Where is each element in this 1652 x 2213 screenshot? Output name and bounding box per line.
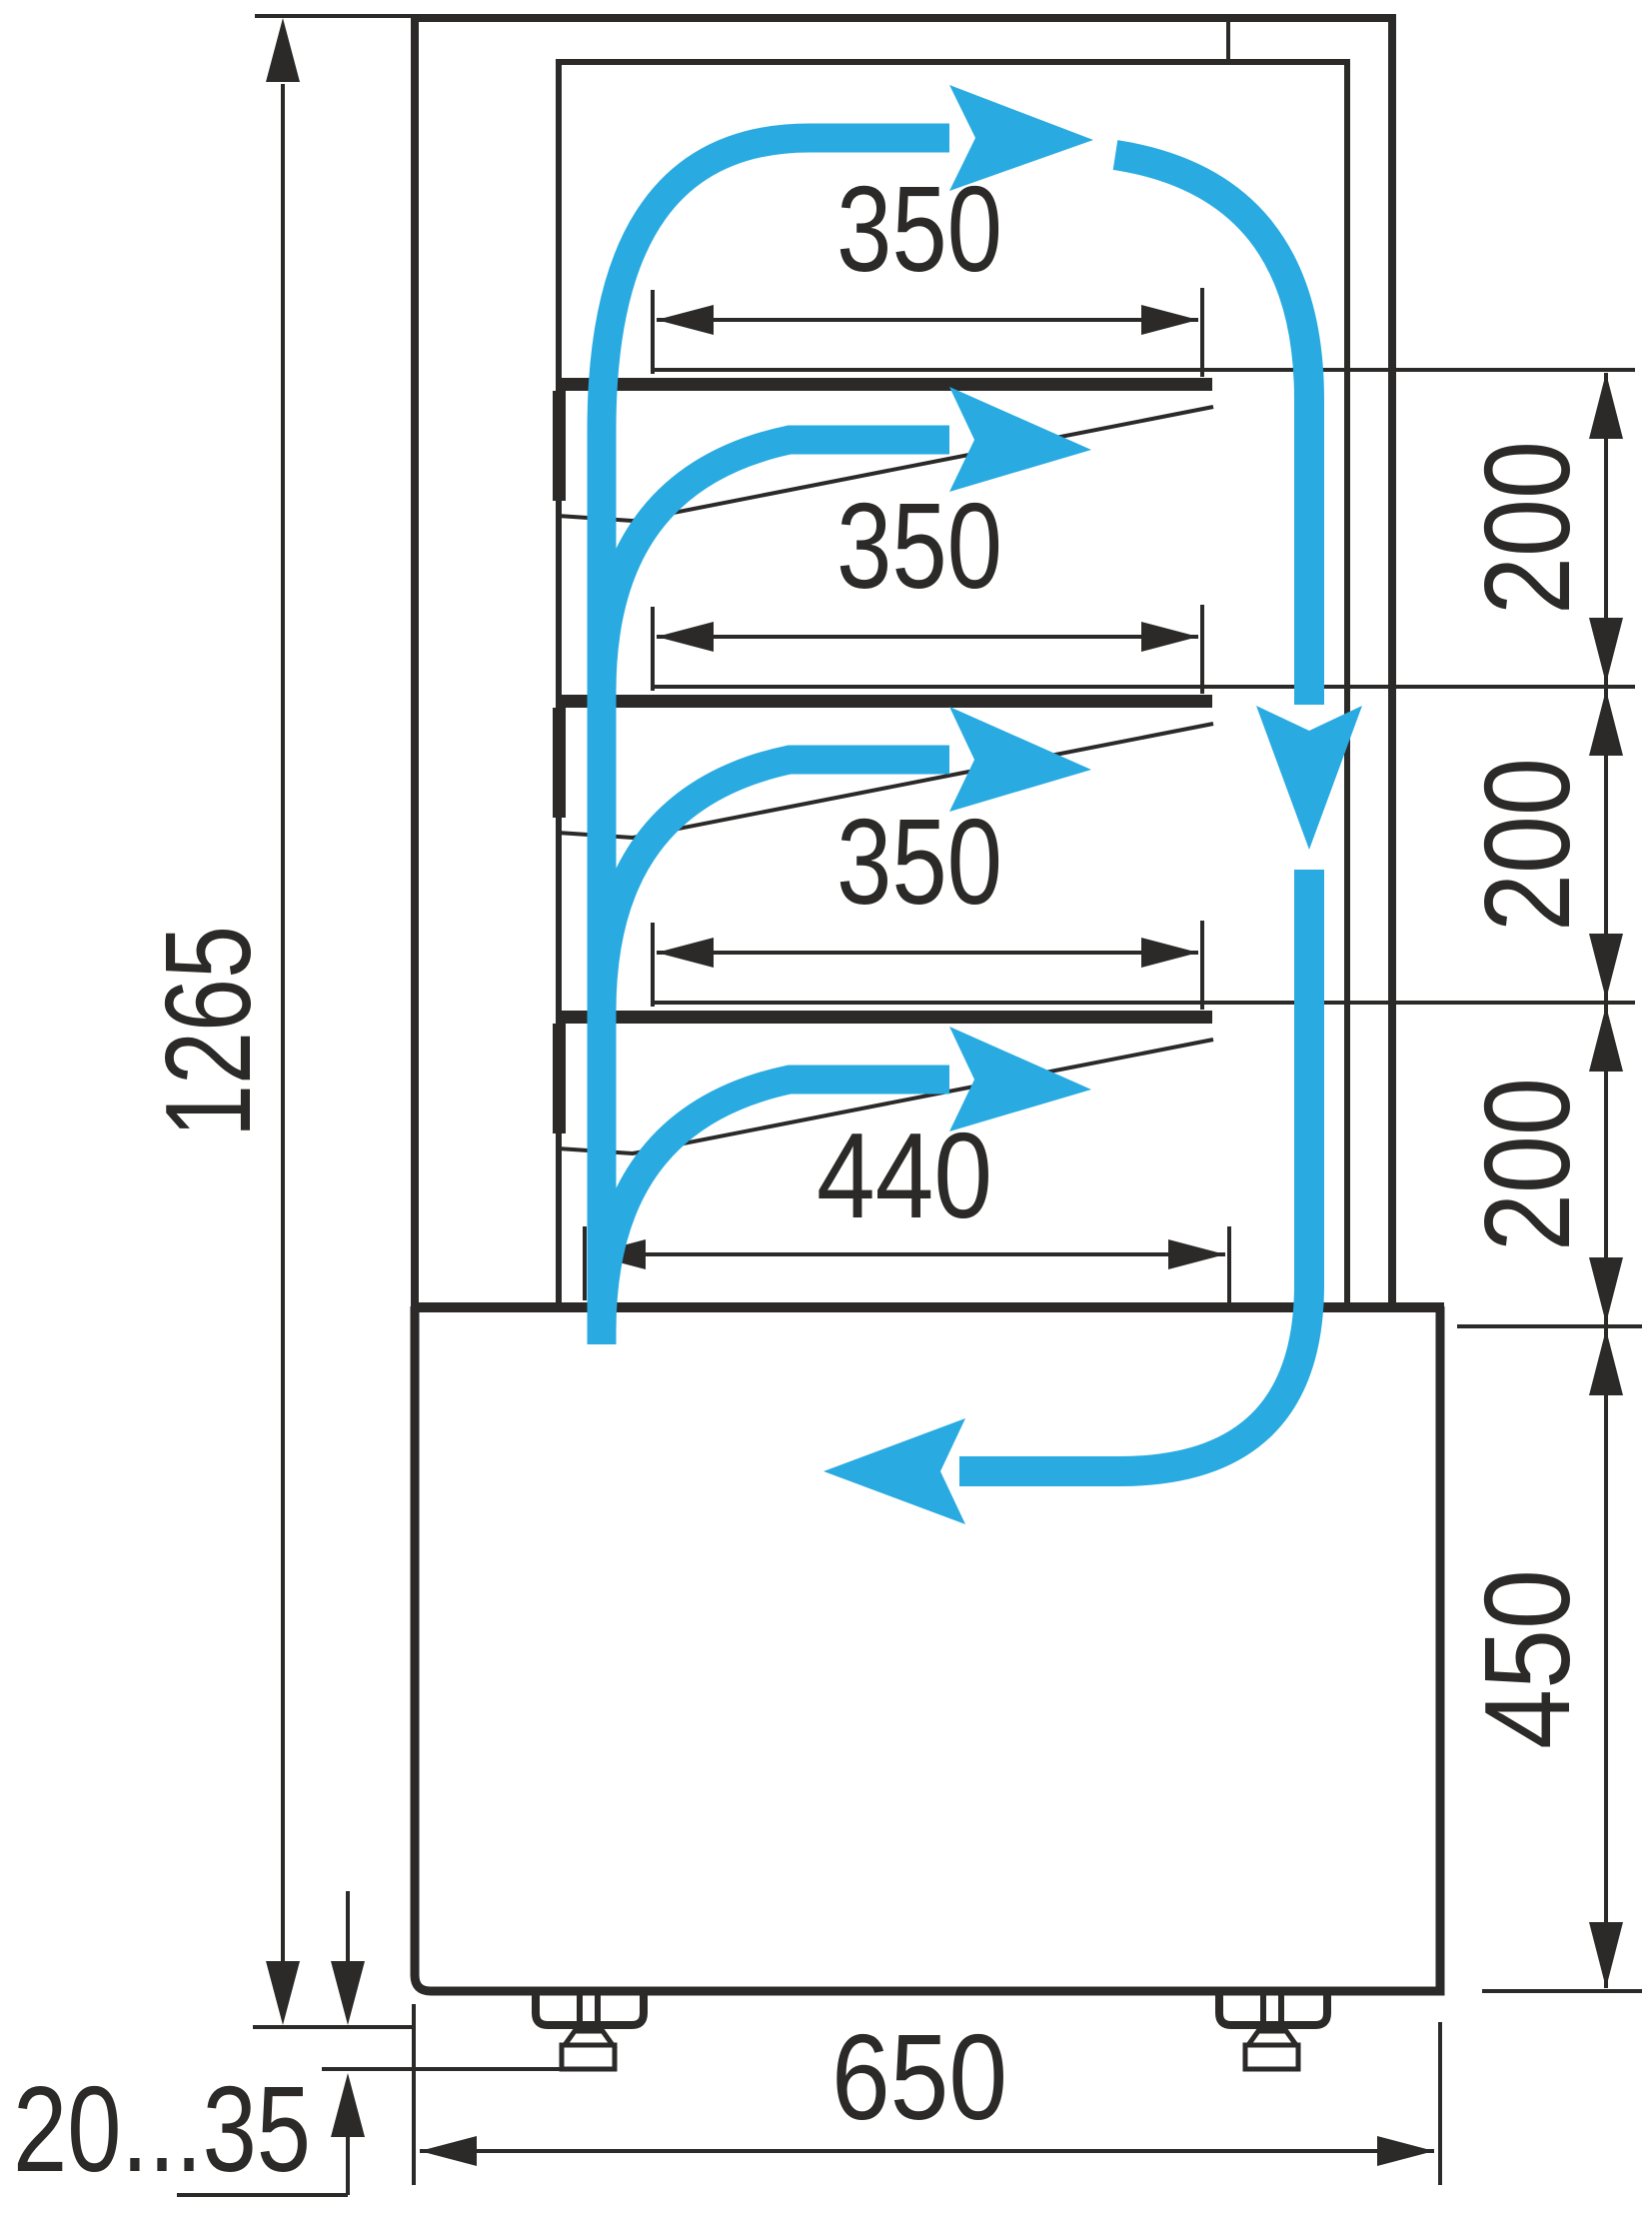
top-panel-inner (556, 59, 1350, 65)
arrow-down-icon (1589, 934, 1623, 1000)
arrow-down-icon (266, 1961, 300, 2025)
shelf-gap-2-label: 200 (1459, 758, 1595, 932)
arrow-right-icon (1168, 1239, 1225, 1269)
airflow-shelf-1-arrow (949, 387, 1091, 492)
airflow-top-right-arrow (949, 85, 1093, 191)
arrow-up-icon (1589, 1006, 1623, 1072)
depth-label: 650 (831, 2009, 1007, 2145)
arrow-left-icon (420, 2136, 477, 2166)
shelf-2-front-bar (556, 695, 1212, 708)
right-dimension-column: 200 200 200 450 (1457, 373, 1642, 1991)
shelf-1-front-bar (556, 378, 1212, 391)
airflow-bottom-left-arrow (824, 1418, 965, 1524)
left-leg-bracket (536, 1995, 644, 2025)
right-leg-screw (1278, 1995, 1284, 2031)
arrow-down-icon (1589, 618, 1623, 684)
left-leg-screw (595, 1995, 601, 2031)
arrow-right-icon (1141, 305, 1198, 335)
dimensions: 1265 350 350 350 (13, 16, 1642, 2197)
arrow-up-icon (266, 18, 300, 82)
display-case-diagram: 1265 350 350 350 (0, 0, 1652, 2213)
right-leg-bracket (1219, 1995, 1327, 2025)
arrow-right-icon (1141, 938, 1198, 968)
airflow-shelf-3-arrow (949, 1027, 1091, 1131)
shelf-3-width-dimension: 350 (653, 794, 1202, 1010)
arrow-up-icon (1589, 690, 1623, 756)
shelf-3-width-label: 350 (836, 794, 1002, 930)
arrow-up-icon (1589, 1329, 1623, 1395)
arrow-down-icon (331, 1961, 365, 2025)
left-foot-pad (562, 2045, 615, 2069)
arrow-up-icon (1589, 373, 1623, 439)
shelf-1-width-dimension: 350 (653, 161, 1202, 377)
top-panel (411, 14, 1396, 22)
chamber-floor (411, 1302, 1444, 1312)
glass-front-outer (1388, 14, 1396, 1307)
shelf-gap-3-label: 200 (1459, 1078, 1595, 1251)
arrow-down-icon (1589, 1922, 1623, 1988)
left-leg-screw (577, 1995, 583, 2031)
base-shelf-width-label: 440 (817, 1107, 992, 1243)
shelf-gap-1-label: 200 (1459, 441, 1595, 615)
shelf-2-width-dimension: 350 (653, 478, 1202, 694)
drawing-canvas: 1265 350 350 350 (0, 0, 1652, 2213)
top-panel-stub (1226, 16, 1230, 59)
shelf-2-bracket (553, 708, 566, 818)
base-height-label: 450 (1459, 1569, 1595, 1749)
shelf-3-bracket (553, 1024, 566, 1133)
left-leg (536, 1995, 644, 2069)
arrow-up-icon (331, 2073, 365, 2137)
airflow-front-descent (1115, 155, 1309, 705)
right-leg-screw (1260, 1995, 1266, 2031)
overall-height-dimension: 1265 (140, 16, 413, 2027)
arrow-right-icon (1377, 2136, 1434, 2166)
foot-adjustment-label: 20...35 (13, 2061, 311, 2197)
arrow-down-icon (1589, 1257, 1623, 1323)
arrow-left-icon (657, 622, 714, 652)
left-wall (411, 14, 419, 1307)
right-foot-pad (1245, 2045, 1298, 2069)
shelf-3-front-bar (556, 1011, 1212, 1024)
shelf-2-width-label: 350 (836, 478, 1002, 614)
total-height-label: 1265 (140, 926, 276, 1137)
arrow-left-icon (657, 305, 714, 335)
arrow-left-icon (657, 938, 714, 968)
shelf-1-width-label: 350 (836, 161, 1002, 297)
airflow-front-descent-lower (959, 870, 1309, 1471)
airflow-shelf-2-arrow (949, 707, 1091, 812)
arrow-right-icon (1141, 622, 1198, 652)
right-leg (1219, 1995, 1327, 2069)
shelf-1-bracket (553, 391, 566, 501)
